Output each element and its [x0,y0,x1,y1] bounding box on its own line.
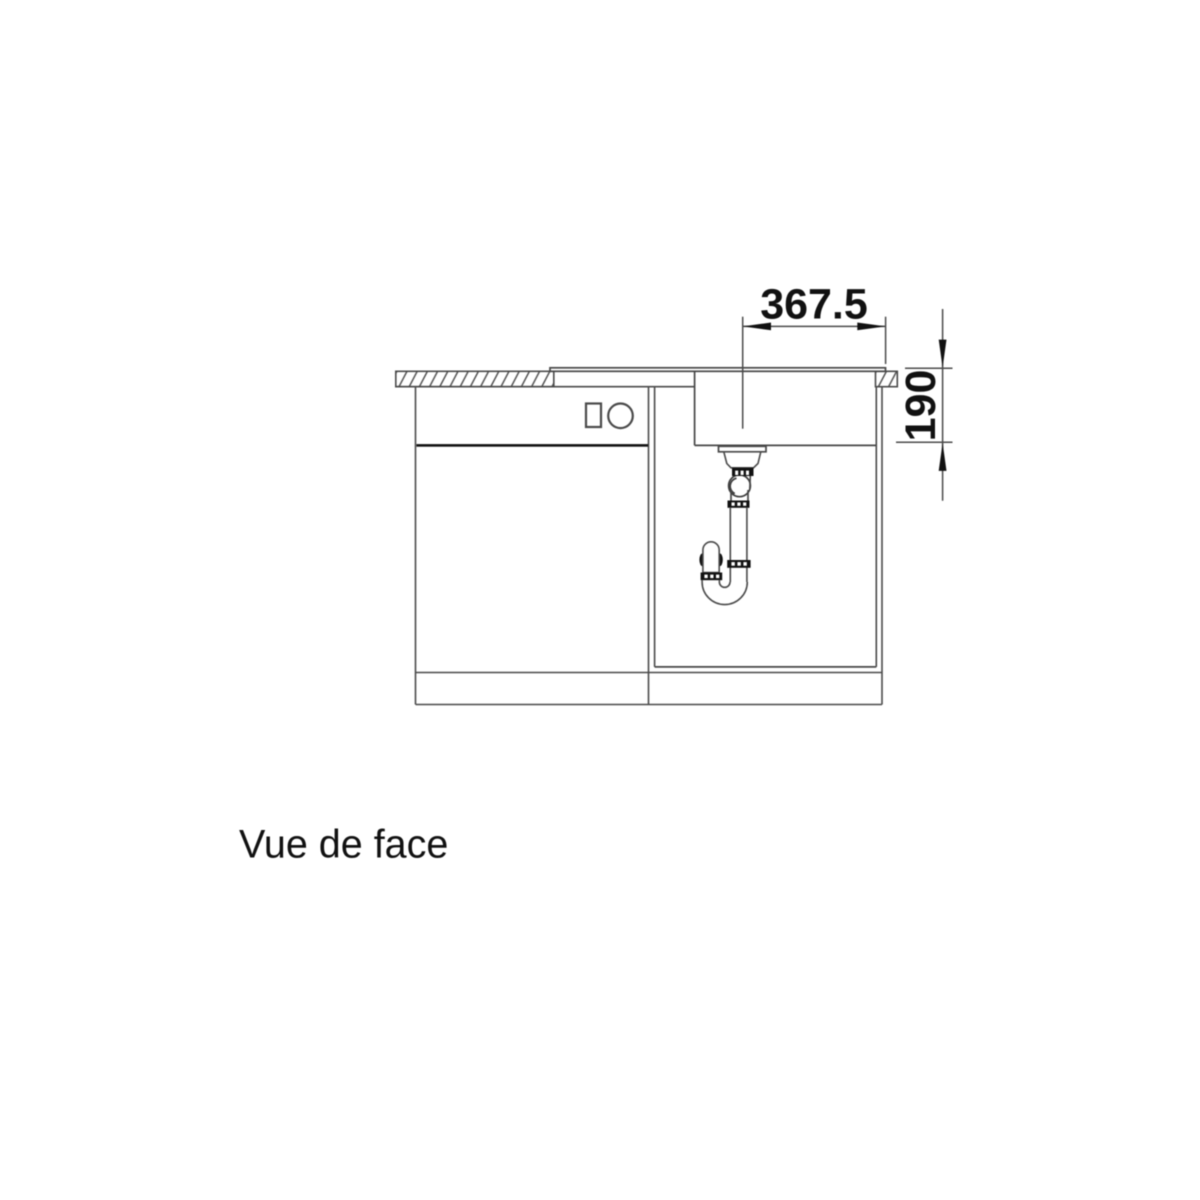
svg-text:Vue de face: Vue de face [239,823,448,867]
svg-text:367.5: 367.5 [760,280,868,328]
svg-text:190: 190 [897,370,945,442]
